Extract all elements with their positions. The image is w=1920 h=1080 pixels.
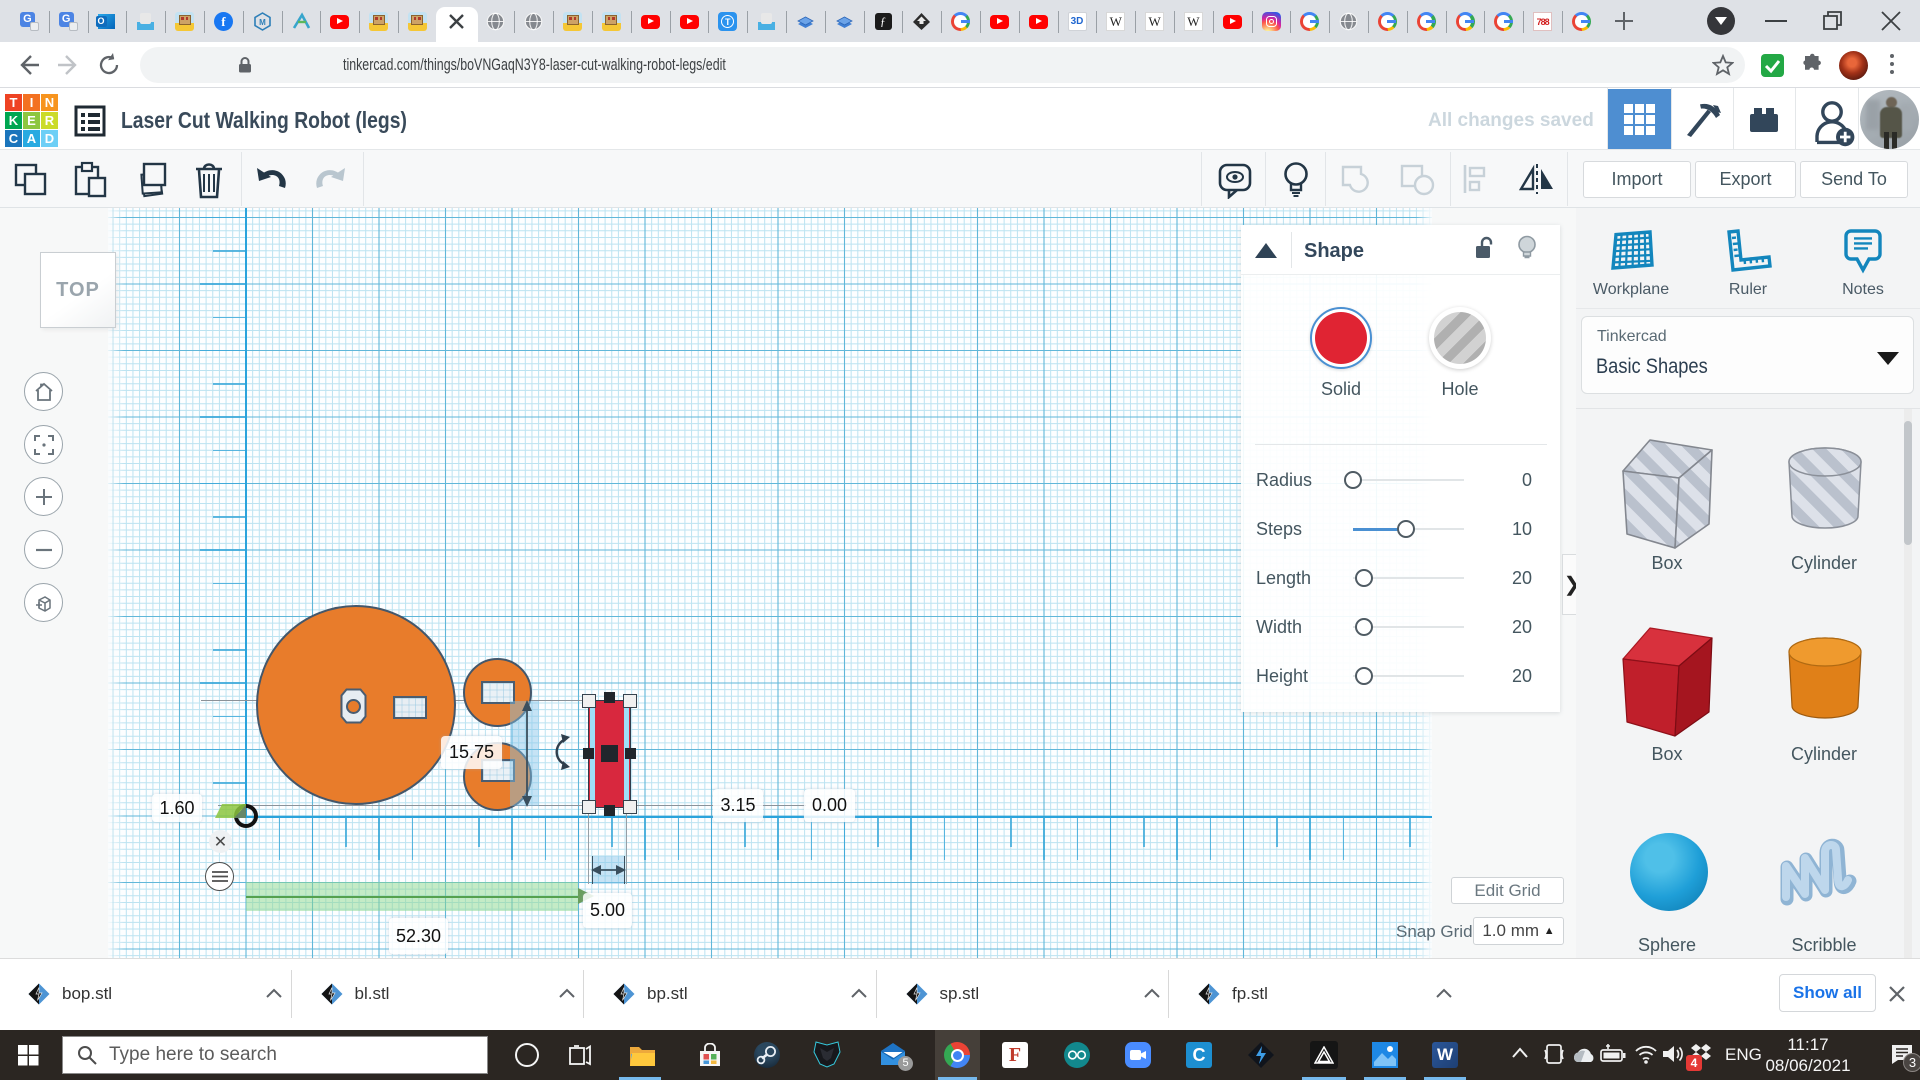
svg-text:M: M	[259, 18, 266, 27]
